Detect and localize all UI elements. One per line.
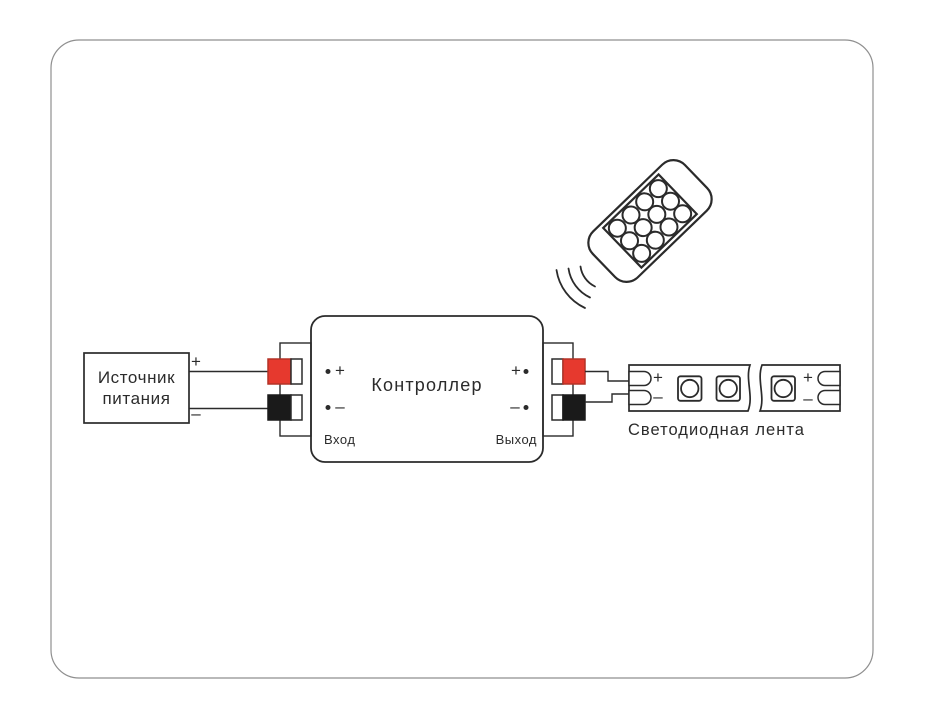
wire-negative-output <box>585 394 629 402</box>
power-minus-mark: – <box>186 405 206 423</box>
strip-end-minus-mark: – <box>798 390 818 408</box>
output-terminal-negative <box>563 395 585 420</box>
output-terminal-positive-clamp <box>552 359 563 384</box>
power-source-label: Источник питания <box>84 353 189 423</box>
led-strip-caption: Светодиодная лента <box>628 421 805 439</box>
input-terminal-bracket <box>280 343 311 436</box>
controller-output-plus-mark: + <box>506 362 526 380</box>
output-terminal-negative-clamp <box>552 395 563 420</box>
wiring-diagram: Источник питания + – Контроллер + – + – … <box>0 0 925 720</box>
strip-start-minus-mark: – <box>648 388 668 406</box>
input-terminal-positive <box>268 359 291 384</box>
led-strip-pad-end-negative <box>818 391 840 405</box>
signal-arc-inner <box>581 267 596 287</box>
controller-input-minus-mark: – <box>330 398 350 416</box>
power-source-label-line1: Источник <box>98 367 175 388</box>
power-source-label-line2: питания <box>102 388 170 409</box>
strip-start-plus-mark: + <box>648 369 668 387</box>
led-strip-pad-end-positive <box>818 372 840 386</box>
wire-positive-output <box>585 372 629 382</box>
signal-arc-middle <box>569 269 591 298</box>
controller-output-caption: Выход <box>480 432 537 447</box>
output-terminal-positive <box>563 359 585 384</box>
input-terminal-negative-clamp <box>291 395 302 420</box>
input-terminal-negative <box>268 395 291 420</box>
led-chips <box>678 376 795 401</box>
ir-signal-waves <box>557 267 596 309</box>
power-plus-mark: + <box>186 353 206 371</box>
controller-input-plus-mark: + <box>330 362 350 380</box>
controller-output-minus-mark: – <box>505 398 525 416</box>
strip-end-plus-mark: + <box>798 369 818 387</box>
input-terminal-positive-clamp <box>291 359 302 384</box>
output-terminal-bracket <box>543 343 573 436</box>
controller-input-caption: Вход <box>324 432 355 447</box>
remote-control <box>582 154 719 289</box>
